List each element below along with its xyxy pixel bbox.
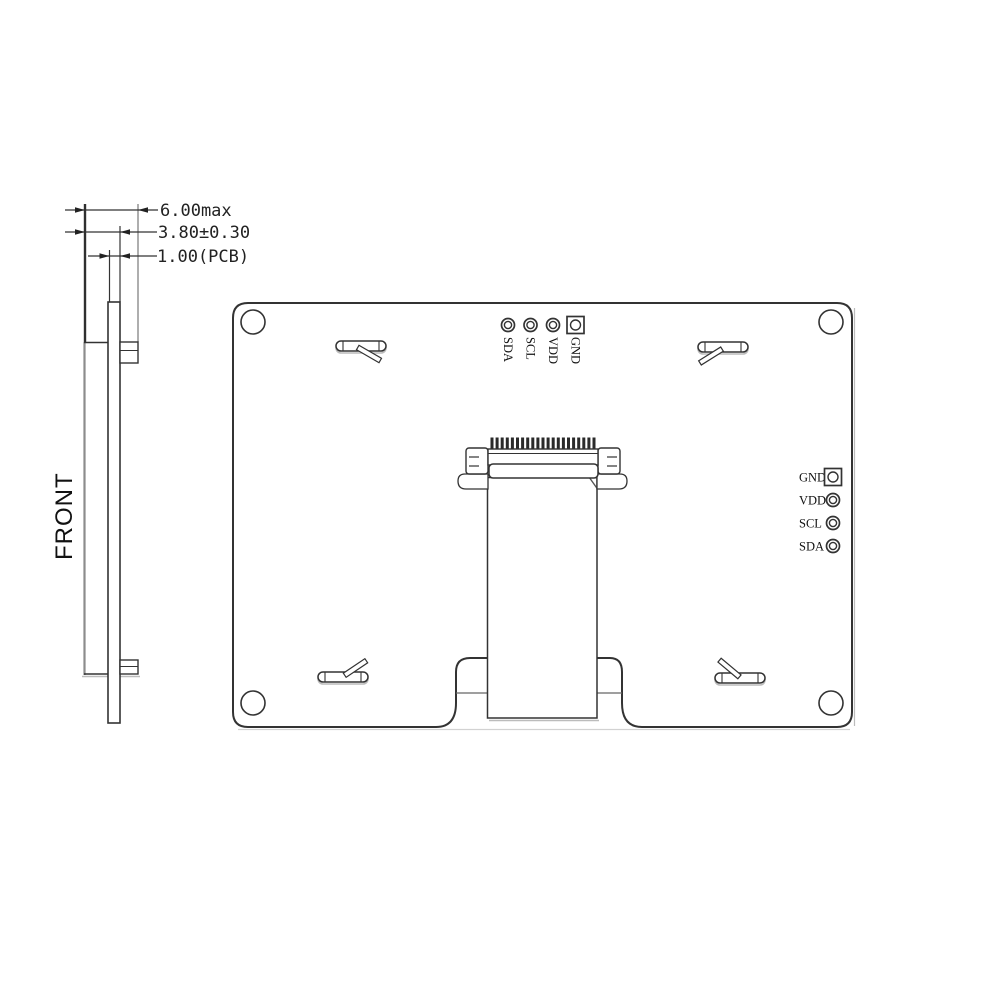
- pin-pad-gnd-square: [825, 469, 842, 486]
- dimension-3-80: 3.80±0.30: [65, 223, 250, 243]
- connector-ear-right: [598, 448, 620, 474]
- pcb-back-view: SDA SCL VDD GND GND VDD SCL SDA: [233, 303, 855, 730]
- side-view: 6.00max 3.80±0.30 1.00(PCB): [51, 201, 250, 723]
- dimension-6-00-max: 6.00max: [65, 201, 232, 221]
- top-connector-block: [120, 342, 138, 363]
- right-pin-label-vdd: VDD: [799, 494, 826, 508]
- connector-block: [120, 342, 138, 363]
- top-pin-label-sda: SDA: [501, 337, 515, 362]
- connector-wing-left: [458, 474, 488, 489]
- connector-slot: [489, 464, 598, 478]
- dimension-label: 1.00(PCB): [157, 247, 249, 267]
- bottom-connector-block: [120, 660, 138, 674]
- arrowhead: [75, 207, 85, 212]
- top-pin-label-vdd: VDD: [546, 337, 560, 364]
- right-pin-label-sda: SDA: [799, 540, 824, 554]
- top-pin-label-scl: SCL: [524, 337, 538, 360]
- pcb-side-profile: [108, 302, 120, 723]
- top-pin-label-gnd: GND: [569, 337, 583, 364]
- dimension-label: 3.80±0.30: [158, 223, 250, 243]
- engineering-drawing: 6.00max 3.80±0.30 1.00(PCB): [0, 0, 1000, 1000]
- dimension-label: 6.00max: [160, 201, 232, 221]
- connector-ear-left: [466, 448, 488, 474]
- connector-body: [488, 449, 598, 465]
- right-pin-label-scl: SCL: [799, 517, 822, 531]
- front-view-label: FRONT: [51, 472, 78, 560]
- right-pin-label-gnd: GND: [799, 471, 826, 485]
- arrowhead: [75, 229, 85, 234]
- mechanical-drawing-page: 6.00max 3.80±0.30 1.00(PCB): [0, 0, 1000, 1000]
- ribbon-body: [488, 478, 598, 719]
- arrowhead: [120, 229, 130, 234]
- dimension-1-00-pcb: 1.00(PCB): [88, 247, 249, 267]
- arrowhead: [100, 253, 110, 258]
- arrowhead: [138, 207, 148, 212]
- fpc-ribbon: [488, 477, 600, 721]
- arrowhead: [120, 253, 130, 258]
- connector-wing-right: [597, 474, 627, 489]
- pin-pad-gnd-square: [567, 317, 584, 334]
